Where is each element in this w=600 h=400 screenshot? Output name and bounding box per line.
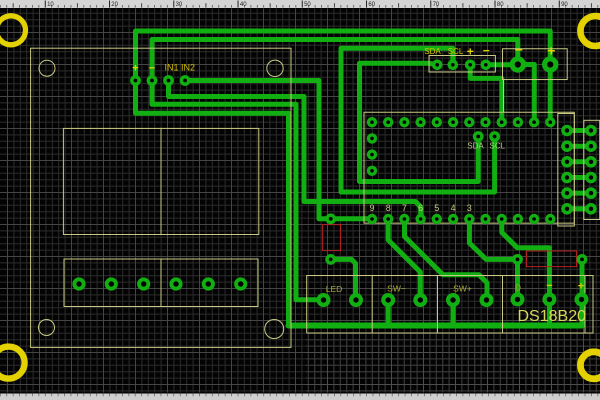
svg-text:80: 80 xyxy=(497,2,504,8)
svg-text:60: 60 xyxy=(368,2,375,8)
svg-text:50: 50 xyxy=(304,2,311,8)
svg-text:SCL: SCL xyxy=(448,47,464,56)
svg-text:7: 7 xyxy=(402,203,407,213)
svg-text:LED: LED xyxy=(326,284,343,294)
svg-text:9: 9 xyxy=(369,203,374,213)
svg-text:SDA: SDA xyxy=(424,47,441,56)
svg-text:−: − xyxy=(483,44,490,58)
svg-text:3: 3 xyxy=(467,203,472,213)
svg-text:SDA: SDA xyxy=(467,142,484,151)
svg-text:20: 20 xyxy=(111,2,118,8)
svg-text:4: 4 xyxy=(451,203,456,213)
svg-text:40: 40 xyxy=(240,2,247,8)
svg-text:D: D xyxy=(515,284,521,293)
svg-text:SW−: SW− xyxy=(387,284,406,294)
svg-text:−: − xyxy=(149,63,155,75)
svg-text:5: 5 xyxy=(434,203,439,213)
svg-text:+: + xyxy=(467,45,474,59)
svg-text:+: + xyxy=(547,43,555,59)
svg-text:8: 8 xyxy=(386,203,391,213)
svg-text:6: 6 xyxy=(418,203,423,213)
svg-text:SCL: SCL xyxy=(490,142,506,151)
svg-text:DS18B20: DS18B20 xyxy=(518,308,587,325)
svg-text:70: 70 xyxy=(433,2,440,8)
svg-text:10: 10 xyxy=(47,2,54,8)
svg-text:90: 90 xyxy=(561,2,568,8)
svg-text:+: + xyxy=(578,281,584,293)
svg-text:SW+: SW+ xyxy=(453,284,472,294)
svg-text:+: + xyxy=(132,63,138,75)
svg-text:−: − xyxy=(515,42,523,58)
svg-text:−: − xyxy=(546,280,552,292)
svg-text:IN1 IN2: IN1 IN2 xyxy=(165,62,196,72)
svg-text:30: 30 xyxy=(176,2,183,8)
